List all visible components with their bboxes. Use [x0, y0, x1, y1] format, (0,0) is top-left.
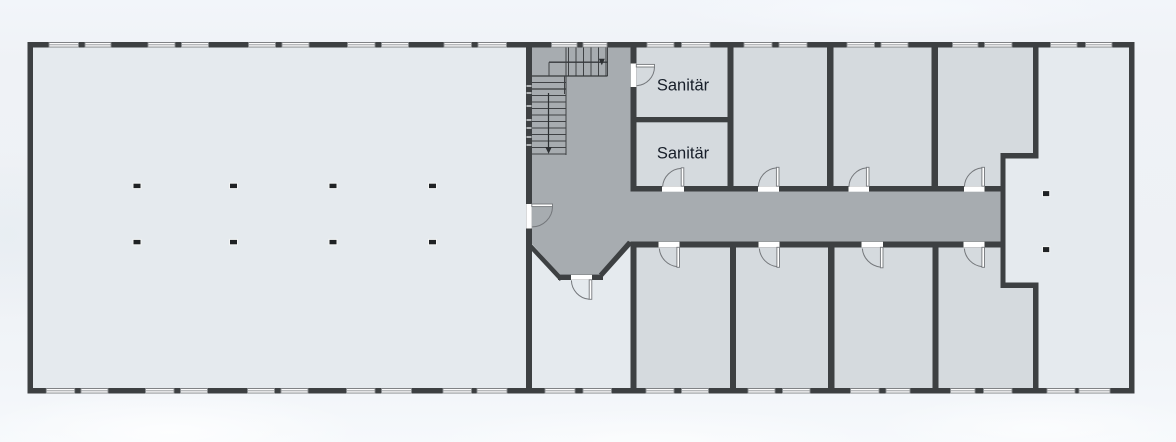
- svg-text:Sanitär: Sanitär: [657, 77, 710, 95]
- svg-text:Sanitär: Sanitär: [657, 145, 710, 163]
